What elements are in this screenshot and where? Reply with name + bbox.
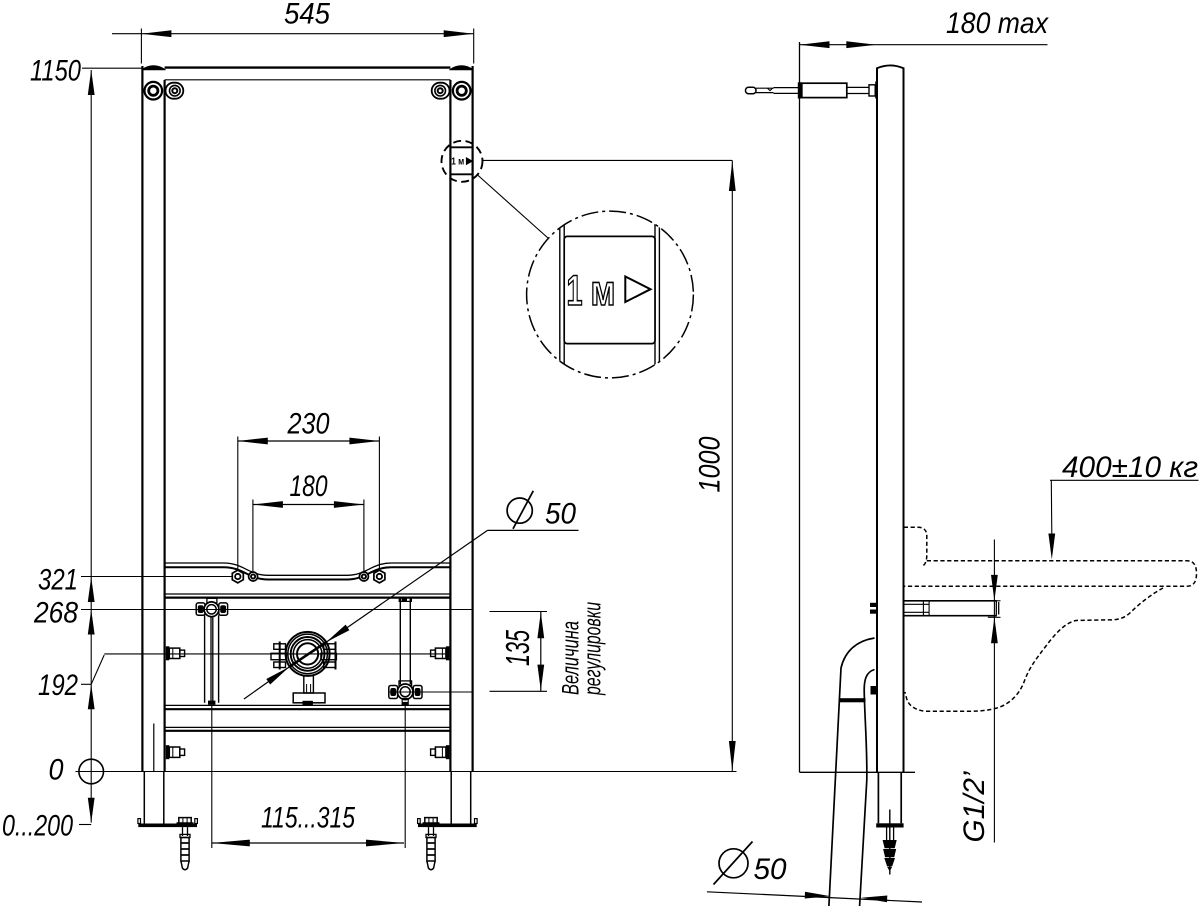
- svg-text:регулировки: регулировки: [580, 602, 607, 696]
- svg-text:50: 50: [545, 498, 576, 531]
- svg-text:400±10 кг: 400±10 кг: [1062, 451, 1198, 484]
- svg-text:545: 545: [284, 0, 330, 31]
- svg-text:м: м: [591, 267, 616, 315]
- svg-text:115...315: 115...315: [261, 802, 355, 835]
- svg-text:1000: 1000: [694, 436, 727, 492]
- svg-text:1 м: 1 м: [451, 156, 464, 168]
- svg-text:0: 0: [49, 754, 64, 787]
- svg-text:0...200: 0...200: [2, 810, 73, 843]
- svg-text:1150: 1150: [30, 55, 81, 88]
- svg-text:50: 50: [754, 853, 787, 886]
- svg-text:230: 230: [287, 408, 330, 441]
- svg-text:321: 321: [38, 564, 78, 597]
- svg-text:1: 1: [567, 267, 583, 315]
- svg-text:G1/2’: G1/2’: [958, 770, 991, 842]
- svg-text:268: 268: [33, 597, 78, 630]
- svg-text:135: 135: [499, 630, 536, 666]
- svg-text:192: 192: [38, 669, 78, 702]
- svg-text:180: 180: [290, 470, 328, 503]
- svg-text:180 max: 180 max: [946, 7, 1049, 40]
